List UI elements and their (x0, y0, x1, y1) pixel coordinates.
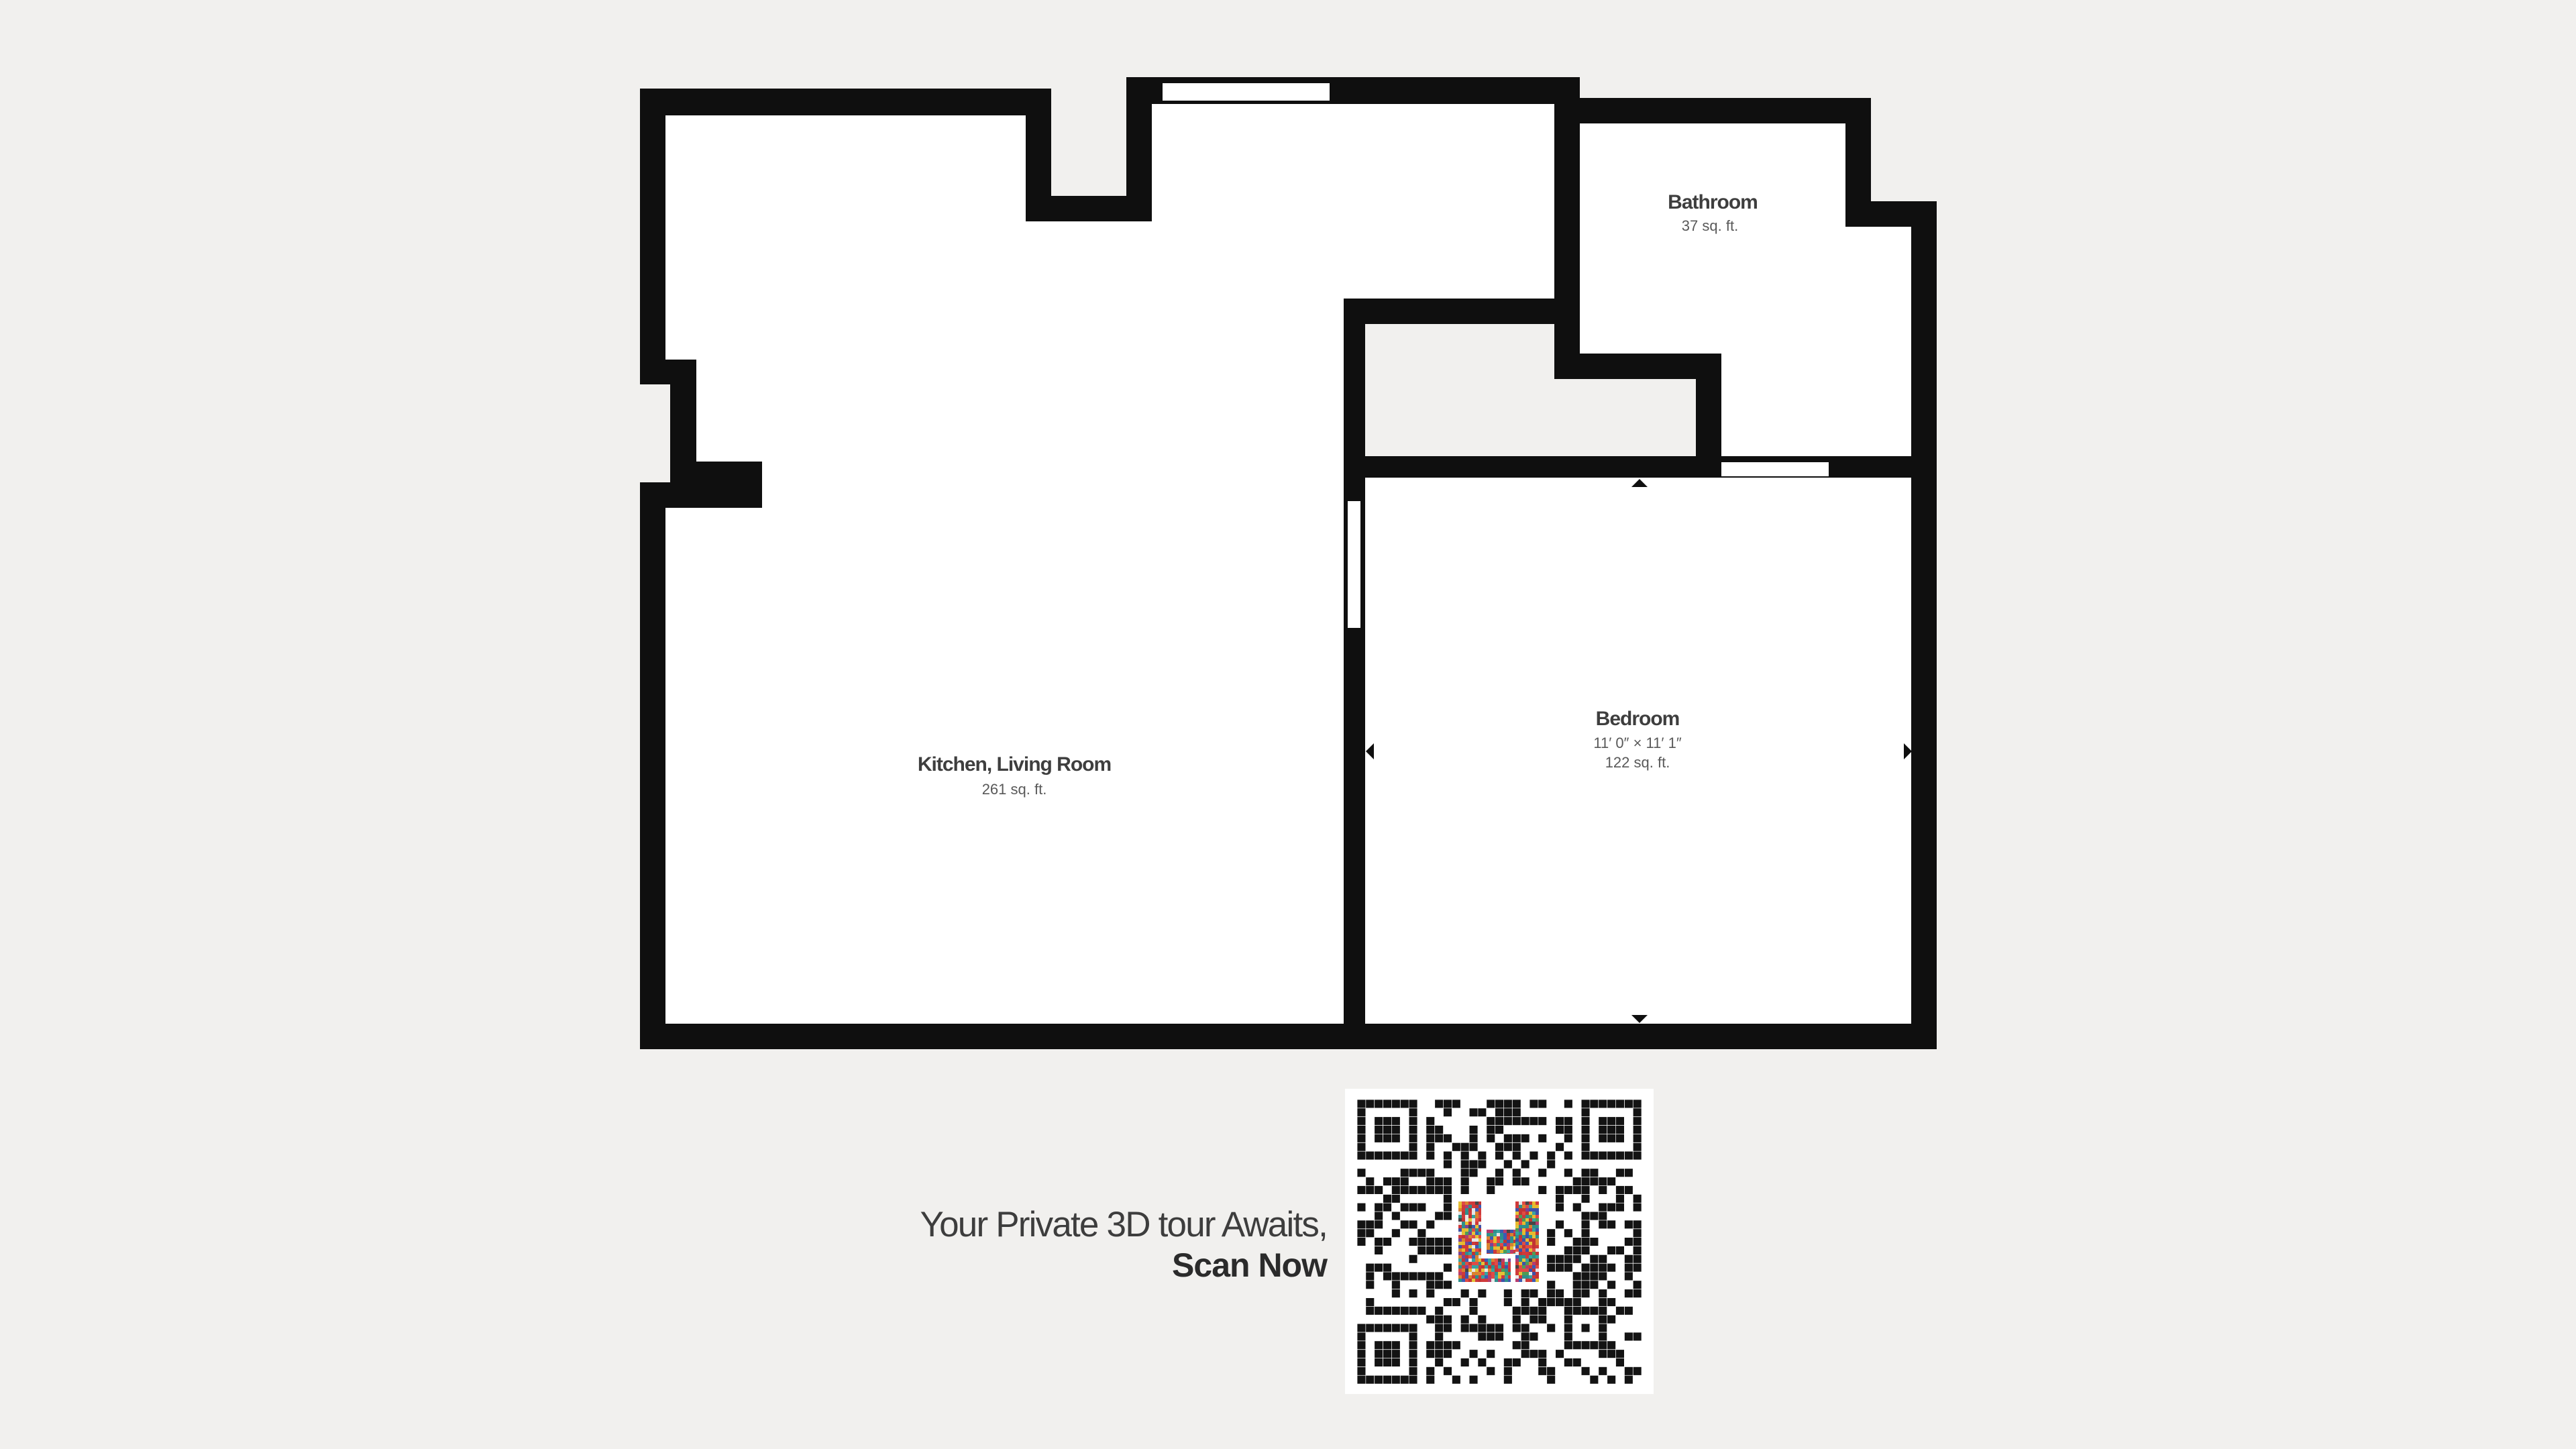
svg-text:Bedroom: Bedroom (1596, 708, 1680, 730)
svg-text:Your Private 3D tour Awaits,: Your Private 3D tour Awaits, (920, 1205, 1327, 1244)
svg-text:11′ 0″ × 11′ 1″: 11′ 0″ × 11′ 1″ (1593, 735, 1681, 751)
svg-text:261 sq. ft.: 261 sq. ft. (982, 781, 1047, 798)
svg-text:122 sq. ft.: 122 sq. ft. (1605, 754, 1670, 771)
svg-text:Bathroom: Bathroom (1668, 191, 1758, 213)
svg-text:37 sq. ft.: 37 sq. ft. (1682, 217, 1738, 234)
svg-text:Kitchen, Living Room: Kitchen, Living Room (918, 753, 1111, 775)
svg-text:Scan Now: Scan Now (1172, 1246, 1328, 1284)
